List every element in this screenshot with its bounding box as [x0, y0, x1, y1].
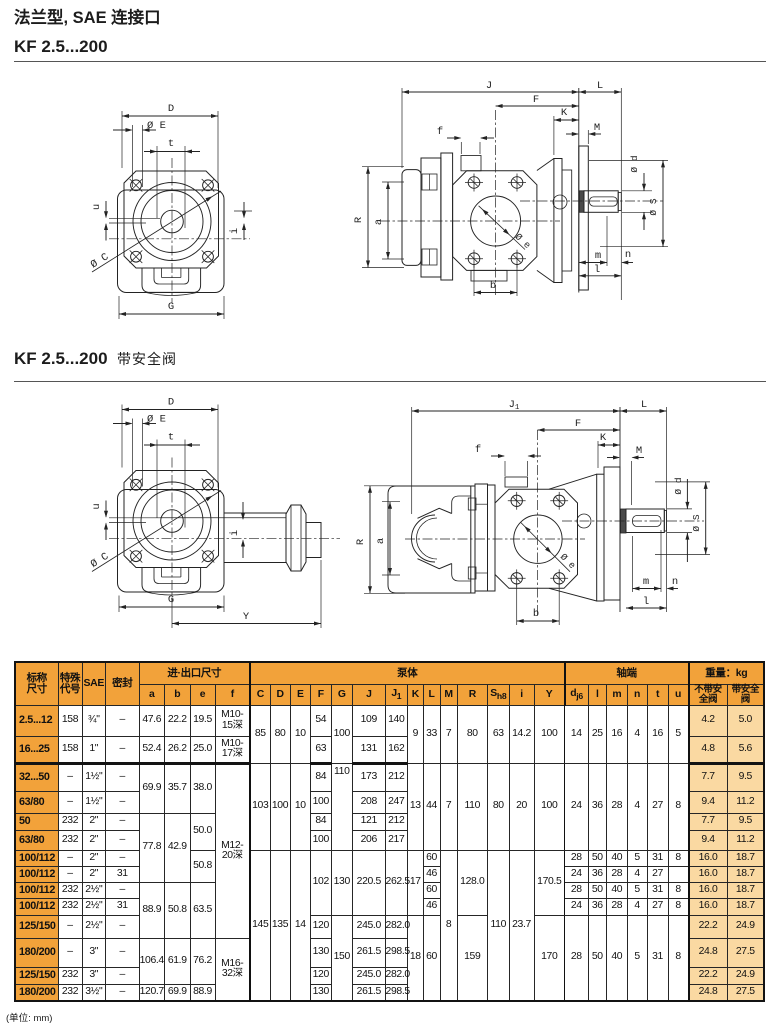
svg-text:Ø E: Ø E	[147, 414, 166, 426]
svg-text:Ø d: Ø d	[673, 477, 684, 494]
svg-text:D: D	[168, 397, 174, 409]
svg-text:i: i	[229, 530, 241, 536]
svg-text:J1: J1	[509, 399, 520, 412]
svg-text:Ø C: Ø C	[89, 551, 111, 571]
svg-text:l: l	[643, 596, 649, 608]
svg-text:K: K	[600, 432, 607, 444]
svg-text:Ø e: Ø e	[558, 551, 578, 571]
svg-text:F: F	[575, 418, 581, 430]
svg-text:b: b	[533, 608, 539, 620]
svg-text:n: n	[672, 576, 678, 588]
svg-text:u: u	[91, 503, 103, 509]
svg-text:Y: Y	[243, 611, 250, 623]
svg-text:m: m	[643, 576, 649, 588]
svg-text:t: t	[168, 432, 174, 444]
svg-text:G: G	[168, 594, 174, 606]
svg-text:R: R	[355, 538, 367, 545]
svg-text:M: M	[636, 445, 642, 457]
svg-text:L: L	[641, 399, 647, 411]
svg-text:a: a	[375, 538, 387, 544]
svg-text:f: f	[475, 444, 481, 456]
svg-text:Ø S: Ø S	[691, 514, 702, 531]
